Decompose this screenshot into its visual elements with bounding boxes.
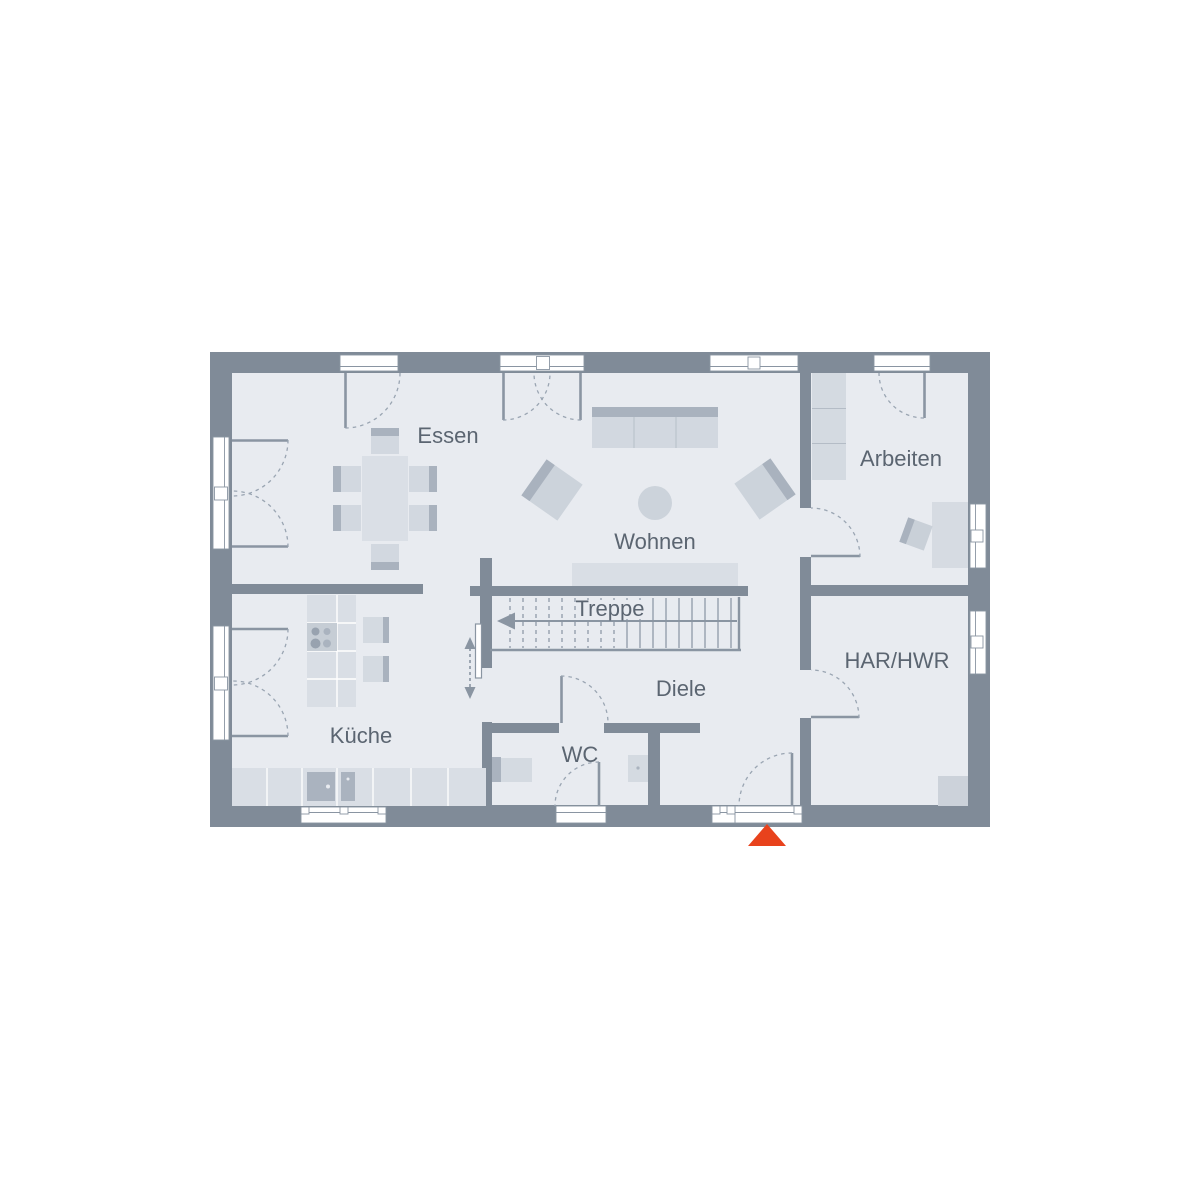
window-handle (971, 530, 983, 542)
entrance-door-sill (712, 806, 802, 823)
wall-segment (492, 723, 559, 733)
room-label-wc: WC (562, 742, 599, 767)
wc-door-sill (556, 806, 606, 823)
dining-chair (333, 466, 361, 492)
wall-segment (210, 352, 990, 373)
window-handle (971, 636, 983, 648)
floor-plan-canvas: Essen Wohnen Arbeiten Küche Treppe Diele… (0, 0, 1200, 1200)
floor-plan: Essen Wohnen Arbeiten Küche Treppe Diele… (0, 0, 1200, 1200)
sofa (592, 407, 718, 448)
french-door-window (500, 355, 584, 371)
toilet (628, 755, 648, 782)
bar-stool (363, 656, 389, 682)
wall-segment (800, 718, 811, 805)
bar-stool (363, 617, 389, 643)
window-handle (215, 677, 228, 690)
wall-segment (210, 352, 232, 827)
window-handle (537, 357, 550, 370)
room-label-essen: Essen (417, 423, 478, 448)
wall-segment (800, 373, 811, 508)
cooktop (307, 623, 337, 651)
dining-chair (409, 505, 437, 531)
shelf (812, 373, 846, 480)
har-hwr-window (970, 611, 986, 674)
wall-segment (800, 557, 811, 670)
storage-unit (938, 776, 968, 806)
dining-chair (371, 544, 399, 570)
room-label-treppe: Treppe (576, 596, 645, 621)
kitchen-counter (232, 768, 486, 806)
arbeiten-window (970, 504, 986, 568)
dining-chair (409, 466, 437, 492)
wohnen-window (710, 355, 798, 371)
room-label-wohnen: Wohnen (614, 529, 696, 554)
cooler (341, 772, 355, 801)
sideboard (572, 563, 738, 586)
desk (932, 502, 968, 568)
dining-chair (333, 505, 361, 531)
window-handle (748, 357, 760, 369)
washbasin (492, 757, 532, 782)
room-label-har-hwr: HAR/HWR (844, 648, 949, 673)
wall-segment (811, 585, 968, 596)
window-handle (215, 487, 228, 500)
terrace-door-essen-window (340, 355, 398, 371)
dining-chair (371, 428, 399, 454)
kueche-window (301, 807, 386, 823)
wall-segment (648, 733, 660, 805)
wall-segment (232, 584, 423, 594)
kitchen-island (307, 595, 356, 707)
wall-segment (604, 723, 700, 733)
terrace-door-arbeiten-window (874, 355, 930, 371)
kueche-french-door-window (213, 626, 229, 740)
room-label-kueche: Küche (330, 723, 392, 748)
dining-table (362, 456, 408, 541)
essen-french-door-window (213, 437, 229, 549)
wall-segment (968, 352, 990, 827)
wall-segment (470, 586, 748, 596)
coffee-table (638, 486, 672, 520)
room-label-diele: Diele (656, 676, 706, 701)
entrance-arrow-icon (748, 824, 786, 846)
sink (307, 772, 335, 801)
room-label-arbeiten: Arbeiten (860, 446, 942, 471)
